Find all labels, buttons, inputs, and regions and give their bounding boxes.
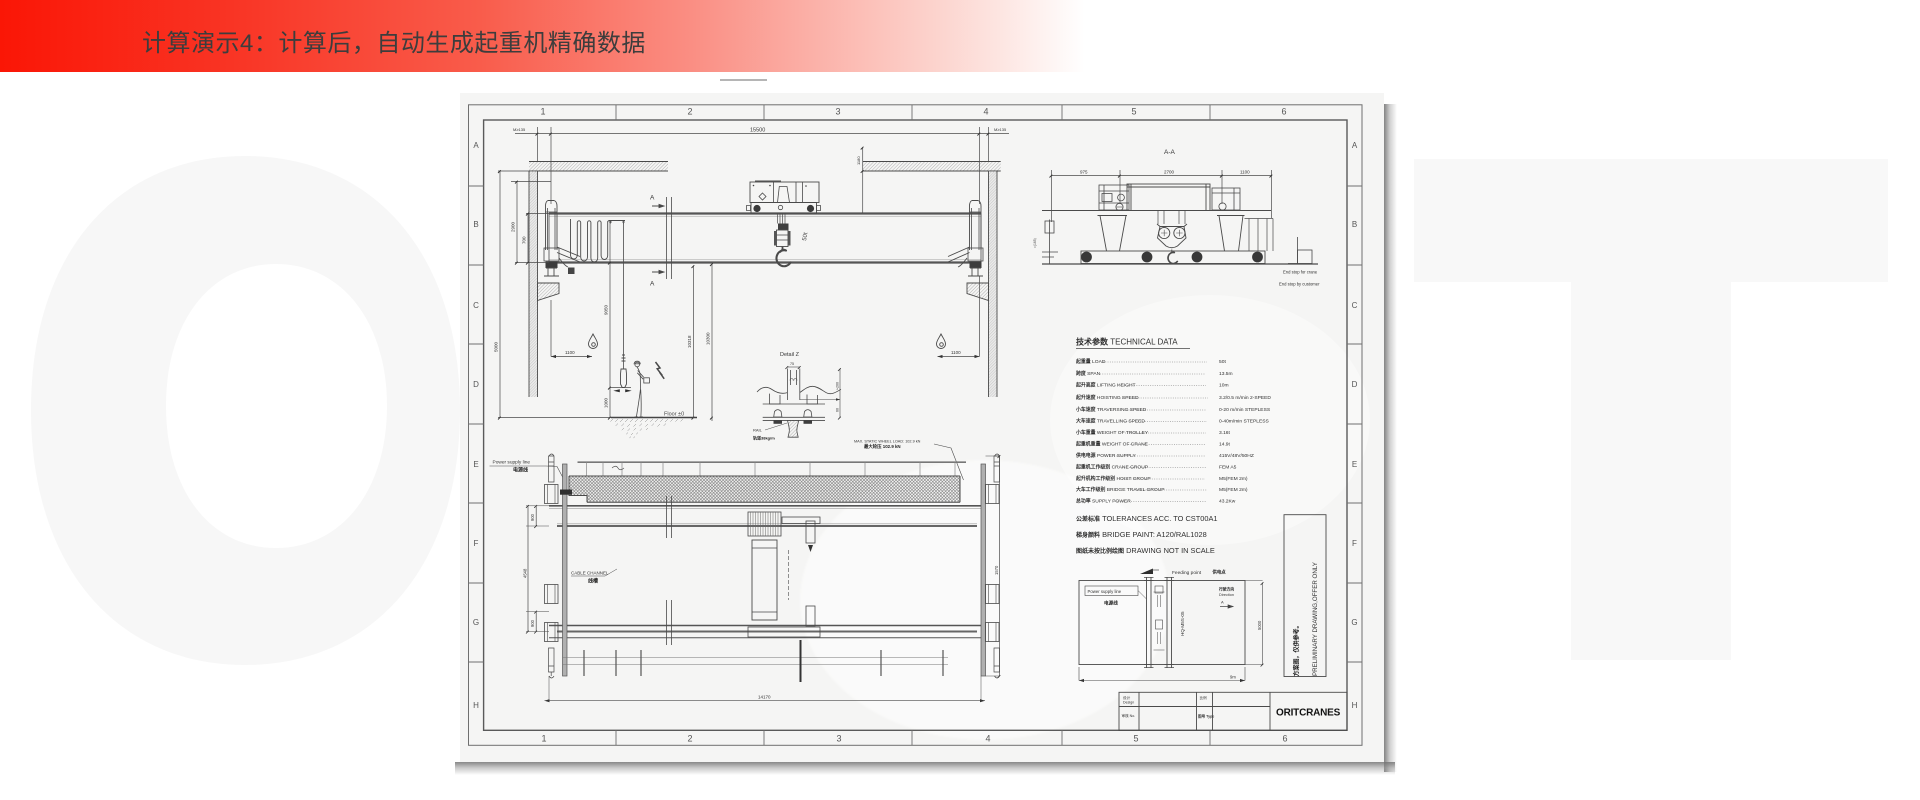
svg-text:G: G: [473, 618, 479, 627]
svg-text:起升机构工作级别 HOIST GROUP: 起升机构工作级别 HOIST GROUP: [1075, 475, 1151, 482]
svg-text:A-A: A-A: [1164, 149, 1176, 156]
svg-text:≈(165): ≈(165): [1033, 238, 1037, 248]
svg-text:A: A: [473, 141, 479, 150]
svg-text:MAX. STATIC WHEEL LOAD: 102.9: MAX. STATIC WHEEL LOAD: 102.9 kN: [854, 440, 921, 444]
svg-text:2700: 2700: [1164, 170, 1175, 175]
svg-text:1000: 1000: [604, 397, 609, 408]
svg-text:供电点: 供电点: [1212, 569, 1227, 576]
svg-text:B: B: [473, 220, 478, 229]
svg-text:1100: 1100: [951, 350, 961, 355]
svg-text:1100: 1100: [1240, 170, 1250, 175]
svg-text:13.5m: 13.5m: [1219, 371, 1233, 377]
svg-text:E: E: [473, 460, 478, 469]
svg-text:ORITCRANES: ORITCRANES: [1276, 708, 1341, 719]
svg-text:10318: 10318: [687, 335, 692, 348]
svg-text:975: 975: [1080, 170, 1088, 175]
svg-text:5000: 5000: [1257, 620, 1262, 630]
svg-text:Feeding point: Feeding point: [1172, 570, 1202, 576]
svg-text:15500: 15500: [750, 128, 765, 134]
svg-text:2900: 2900: [511, 221, 516, 232]
svg-text:大车工作级别 BRIDGE TRAVEL GROUP: 大车工作级别 BRIDGE TRAVEL GROUP: [1076, 486, 1165, 493]
svg-text:供电电源 POWER SUPPLY: 供电电源 POWER SUPPLY: [1075, 452, 1136, 459]
svg-text:小车速度 TRAVERSING SPEED: 小车速度 TRAVERSING SPEED: [1076, 406, 1147, 413]
svg-text:Direction: Direction: [1219, 593, 1234, 597]
svg-text:0-40m/min STEPLESS: 0-40m/min STEPLESS: [1219, 419, 1269, 425]
svg-text:CABLE CHANNEL: CABLE CHANNEL: [571, 571, 609, 576]
svg-text:M≥135: M≥135: [994, 127, 1007, 132]
svg-text:900: 900: [530, 619, 535, 627]
svg-text:3: 3: [835, 107, 840, 117]
svg-text:设计: 设计: [1123, 695, 1131, 700]
svg-text:4: 4: [985, 734, 990, 744]
svg-text:图号 Type: 图号 Type: [1198, 714, 1214, 719]
svg-text:方案图，仅供参考。: 方案图，仅供参考。: [1293, 622, 1301, 676]
svg-text:50t: 50t: [1219, 359, 1226, 365]
svg-text:线槽: 线槽: [588, 578, 598, 585]
svg-text:FEM A5: FEM A5: [1219, 465, 1237, 471]
svg-text:跨度 SPAN: 跨度 SPAN: [1076, 370, 1101, 377]
svg-text:Design: Design: [1123, 701, 1134, 705]
svg-text:PRELIMINARY DRAWING,OFFER ONLY: PRELIMINARY DRAWING,OFFER ONLY: [1312, 562, 1319, 676]
svg-text:1570: 1570: [994, 565, 999, 575]
svg-text:6: 6: [1282, 734, 1287, 744]
svg-text:14170: 14170: [758, 695, 771, 700]
svg-text:小车重量 WEIGHT OF TROLLEY: 小车重量 WEIGHT OF TROLLEY: [1076, 429, 1149, 436]
svg-text:F: F: [474, 539, 479, 548]
svg-text:5: 5: [1131, 107, 1136, 117]
svg-text:3.2/0.5 m/min 2-SPEED: 3.2/0.5 m/min 2-SPEED: [1219, 395, 1271, 401]
svg-text:60: 60: [836, 408, 840, 412]
svg-text:G: G: [1351, 618, 1357, 627]
svg-text:HQ-M5S-05: HQ-M5S-05: [1180, 611, 1185, 636]
svg-text:4: 4: [983, 107, 988, 117]
svg-text:E: E: [1352, 460, 1357, 469]
svg-text:Floor ±0: Floor ±0: [664, 412, 684, 418]
svg-text:M5(FEM 2m): M5(FEM 2m): [1219, 476, 1248, 482]
svg-text:B: B: [1352, 220, 1357, 229]
svg-text:最大轮压 102.9 kN: 最大轮压 102.9 kN: [864, 443, 901, 450]
svg-text:C: C: [1352, 301, 1358, 310]
svg-text:RAIL: RAIL: [753, 428, 763, 433]
svg-text:5: 5: [1133, 734, 1138, 744]
svg-text:43.2Kw: 43.2Kw: [1219, 499, 1236, 505]
svg-text:D: D: [1352, 380, 1358, 389]
svg-text:6: 6: [1281, 107, 1286, 117]
svg-text:1180: 1180: [856, 156, 861, 165]
svg-text:2: 2: [687, 734, 692, 744]
svg-text:9050: 9050: [604, 304, 609, 315]
svg-text:技术参数 TECHNICAL DATA: 技术参数 TECHNICAL DATA: [1076, 337, 1178, 347]
svg-text:H: H: [1352, 701, 1358, 710]
svg-text:起升速度 HOISTING SPEED: 起升速度 HOISTING SPEED: [1075, 394, 1139, 401]
svg-text:Detail Z: Detail Z: [780, 352, 800, 358]
svg-text:End stop for crane: End stop for crane: [1283, 270, 1318, 275]
svg-text:4548: 4548: [523, 568, 528, 578]
svg-text:C: C: [473, 301, 479, 310]
svg-text:0-20 m/min STEPLESS: 0-20 m/min STEPLESS: [1219, 407, 1271, 413]
svg-text:A: A: [1221, 600, 1224, 605]
svg-text:700: 700: [522, 236, 527, 244]
svg-text:总功率 SUPPLY POWER: 总功率 SUPPLY POWER: [1076, 498, 1131, 505]
svg-text:轨道38kg/m: 轨道38kg/m: [753, 435, 775, 441]
svg-text:3.16t: 3.16t: [1219, 430, 1231, 436]
svg-text:5000: 5000: [494, 341, 499, 352]
svg-text:电源线: 电源线: [1104, 600, 1118, 607]
svg-text:900: 900: [530, 513, 535, 521]
svg-text:大车速度 TRAVELLING SPEED: 大车速度 TRAVELLING SPEED: [1076, 418, 1145, 425]
svg-text:75: 75: [790, 362, 794, 366]
svg-text:起重量 LOAD: 起重量 LOAD: [1075, 358, 1106, 365]
svg-text:10300: 10300: [706, 332, 711, 345]
svg-text:行驶方向: 行驶方向: [1218, 587, 1234, 592]
svg-text:F: F: [1352, 539, 1357, 548]
svg-text:9m: 9m: [1230, 675, 1236, 680]
svg-text:2: 2: [687, 107, 692, 117]
svg-text:1100: 1100: [565, 350, 575, 355]
svg-text:415V/48V/50HZ: 415V/48V/50HZ: [1219, 453, 1254, 459]
svg-text:50t: 50t: [802, 232, 809, 242]
svg-text:≈200: ≈200: [836, 382, 840, 390]
svg-text:10m: 10m: [1219, 383, 1229, 389]
svg-text:电源线: 电源线: [513, 467, 528, 474]
svg-text:1: 1: [541, 734, 546, 744]
svg-text:起升高度 LIFTING HEIGHT: 起升高度 LIFTING HEIGHT: [1075, 382, 1136, 389]
svg-text:A: A: [650, 195, 655, 202]
svg-text:Power supply line: Power supply line: [493, 460, 531, 466]
svg-text:D: D: [473, 380, 479, 389]
svg-text:M≥135: M≥135: [513, 127, 526, 132]
svg-text:M5(FEM 2m): M5(FEM 2m): [1219, 487, 1248, 493]
svg-text:A: A: [650, 281, 655, 288]
svg-text:1: 1: [540, 107, 545, 117]
svg-text:A: A: [1352, 141, 1358, 150]
svg-text:起重机工作级别 CRANE GROUP: 起重机工作级别 CRANE GROUP: [1075, 464, 1148, 471]
svg-text:Power supply line: Power supply line: [1088, 589, 1122, 594]
svg-text:End stop by customer: End stop by customer: [1279, 282, 1320, 287]
svg-text:审核 No.: 审核 No.: [1122, 713, 1136, 718]
svg-text:起重机重量 WEIGHT OF CRANE: 起重机重量 WEIGHT OF CRANE: [1075, 441, 1149, 448]
svg-text:比例: 比例: [1200, 695, 1208, 700]
svg-text:3: 3: [836, 734, 841, 744]
svg-text:14.9t: 14.9t: [1219, 442, 1231, 448]
svg-text:H: H: [473, 701, 479, 710]
